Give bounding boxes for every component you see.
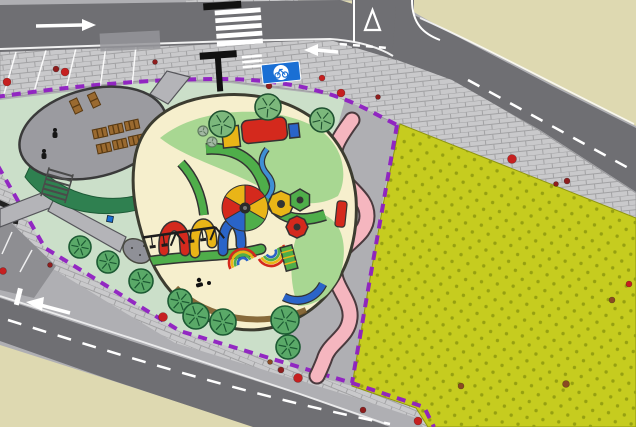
pebble [139, 254, 141, 256]
bollard-icon [153, 60, 158, 65]
bollard-icon [360, 407, 366, 413]
bollard-icon [319, 75, 325, 81]
bollard-icon [294, 374, 303, 383]
bollard-icon [268, 360, 273, 365]
small-tree-icon [207, 137, 217, 147]
bush-icon [183, 303, 209, 329]
bollard-icon [508, 155, 517, 164]
bollard-icon [458, 383, 464, 389]
screenshot [0, 0, 636, 427]
spinner-green [291, 189, 310, 211]
bush-icon [129, 269, 153, 293]
person-icon [53, 128, 58, 138]
bollard-icon [376, 95, 381, 100]
play-tower [335, 201, 348, 228]
bush-icon [276, 335, 300, 359]
bollard-icon [159, 313, 168, 322]
pebble [131, 247, 133, 249]
bollard-icon [278, 367, 284, 373]
bollard-icon [337, 89, 345, 97]
bollard-icon [609, 297, 615, 303]
tree-icon [255, 94, 281, 120]
tree-icon [310, 108, 334, 132]
tree-icon [209, 111, 235, 137]
bollard-icon [0, 268, 7, 275]
bus-bay [100, 30, 161, 51]
bollard-icon [61, 68, 69, 76]
info-sign [107, 216, 114, 223]
bollard-icon [53, 66, 59, 72]
bush-icon [271, 306, 299, 334]
bollard-icon [48, 263, 53, 268]
spinner-red [286, 216, 308, 238]
bollard-icon [563, 381, 570, 388]
bollard-icon [626, 281, 632, 287]
bollard-icon [564, 178, 570, 184]
carousel-hub-cap [243, 206, 247, 210]
bush-icon [69, 236, 91, 258]
bollard-icon [3, 78, 11, 86]
site-plan [0, 0, 636, 427]
bush-icon [210, 309, 236, 335]
give-way-lines [242, 54, 263, 68]
bollard-icon [414, 417, 422, 425]
small-tree-icon [198, 126, 208, 136]
bollard-icon [554, 182, 559, 187]
person-icon [42, 149, 47, 159]
bike-parking-sign [261, 61, 301, 84]
bush-icon [97, 251, 119, 273]
